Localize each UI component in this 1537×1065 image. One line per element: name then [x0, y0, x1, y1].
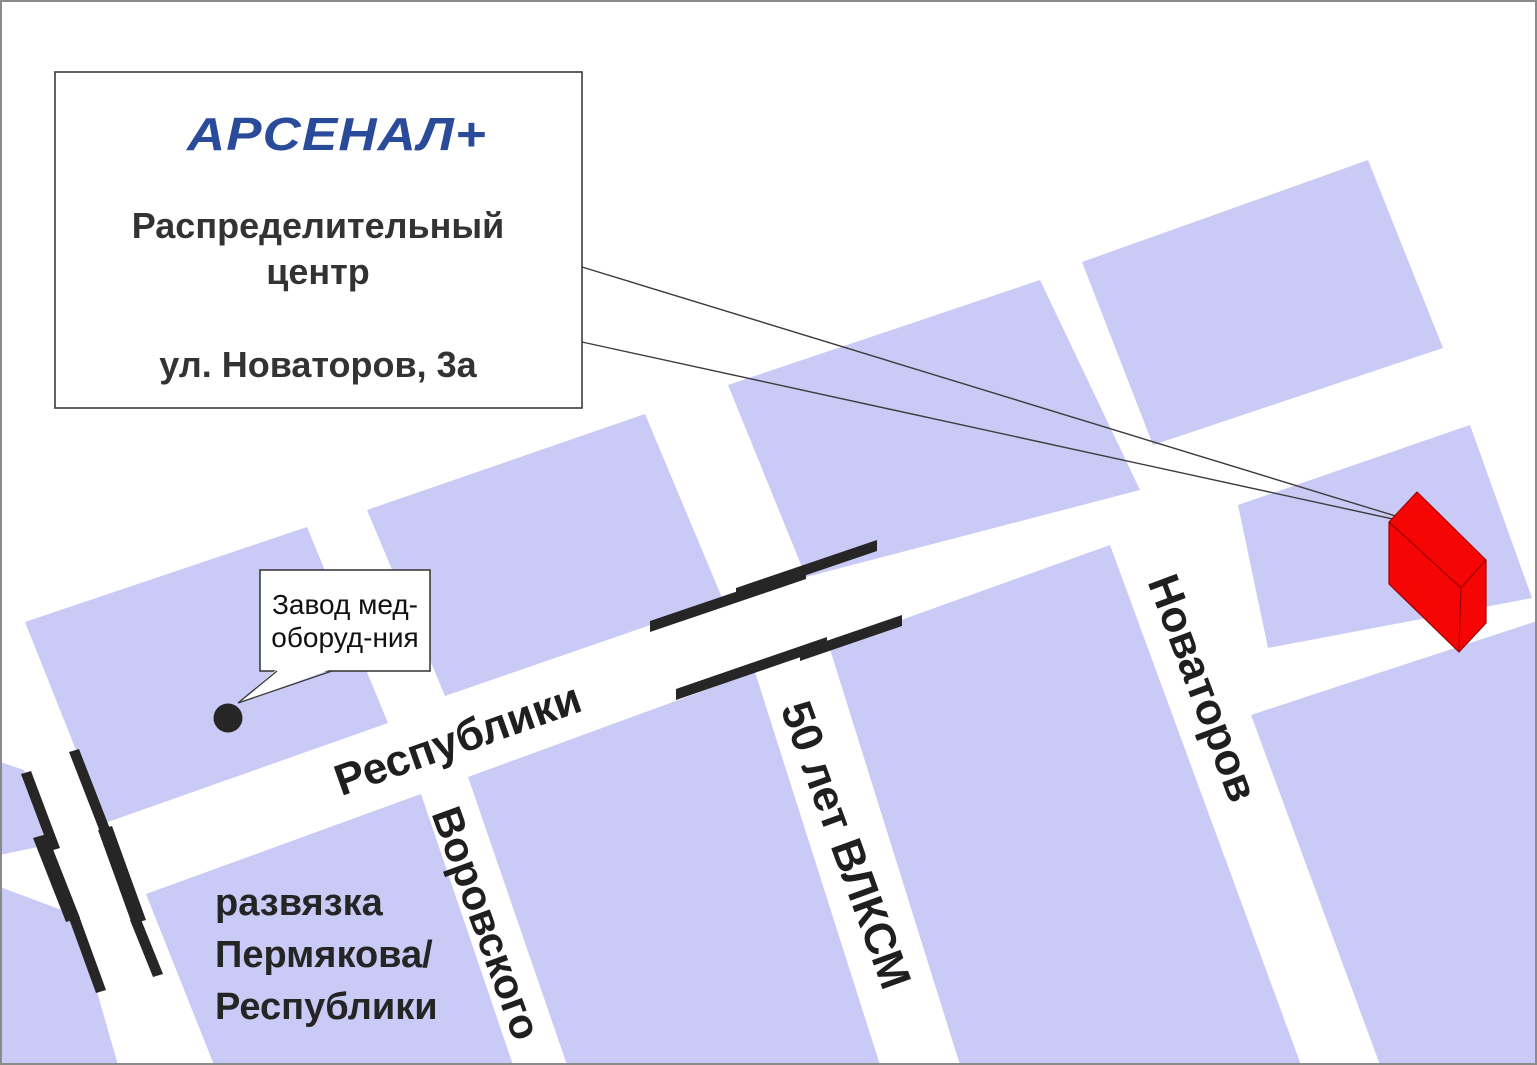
callout-address: ул. Новаторов, 3а: [159, 344, 477, 385]
route-map: Завод мед- оборуд-ния АРСЕНАЛ+ Распредел…: [0, 0, 1537, 1065]
factory-label-line2: оборуд-ния: [271, 622, 418, 653]
junction-label-line2: Пермякова/: [215, 934, 433, 976]
junction-label-line1: развязка: [215, 882, 384, 924]
company-logo: АРСЕНАЛ+: [186, 108, 487, 160]
info-callout: АРСЕНАЛ+ Распределительный центр ул. Нов…: [55, 72, 582, 408]
callout-title-line2: центр: [266, 251, 370, 292]
callout-title-line1: Распределительный: [132, 205, 504, 246]
factory-location-dot: [214, 704, 243, 733]
map-canvas: Завод мед- оборуд-ния АРСЕНАЛ+ Распредел…: [0, 0, 1537, 1065]
factory-callout-box: [260, 570, 430, 671]
junction-label-line3: Республики: [215, 986, 438, 1028]
factory-label-line1: Завод мед-: [272, 589, 418, 620]
